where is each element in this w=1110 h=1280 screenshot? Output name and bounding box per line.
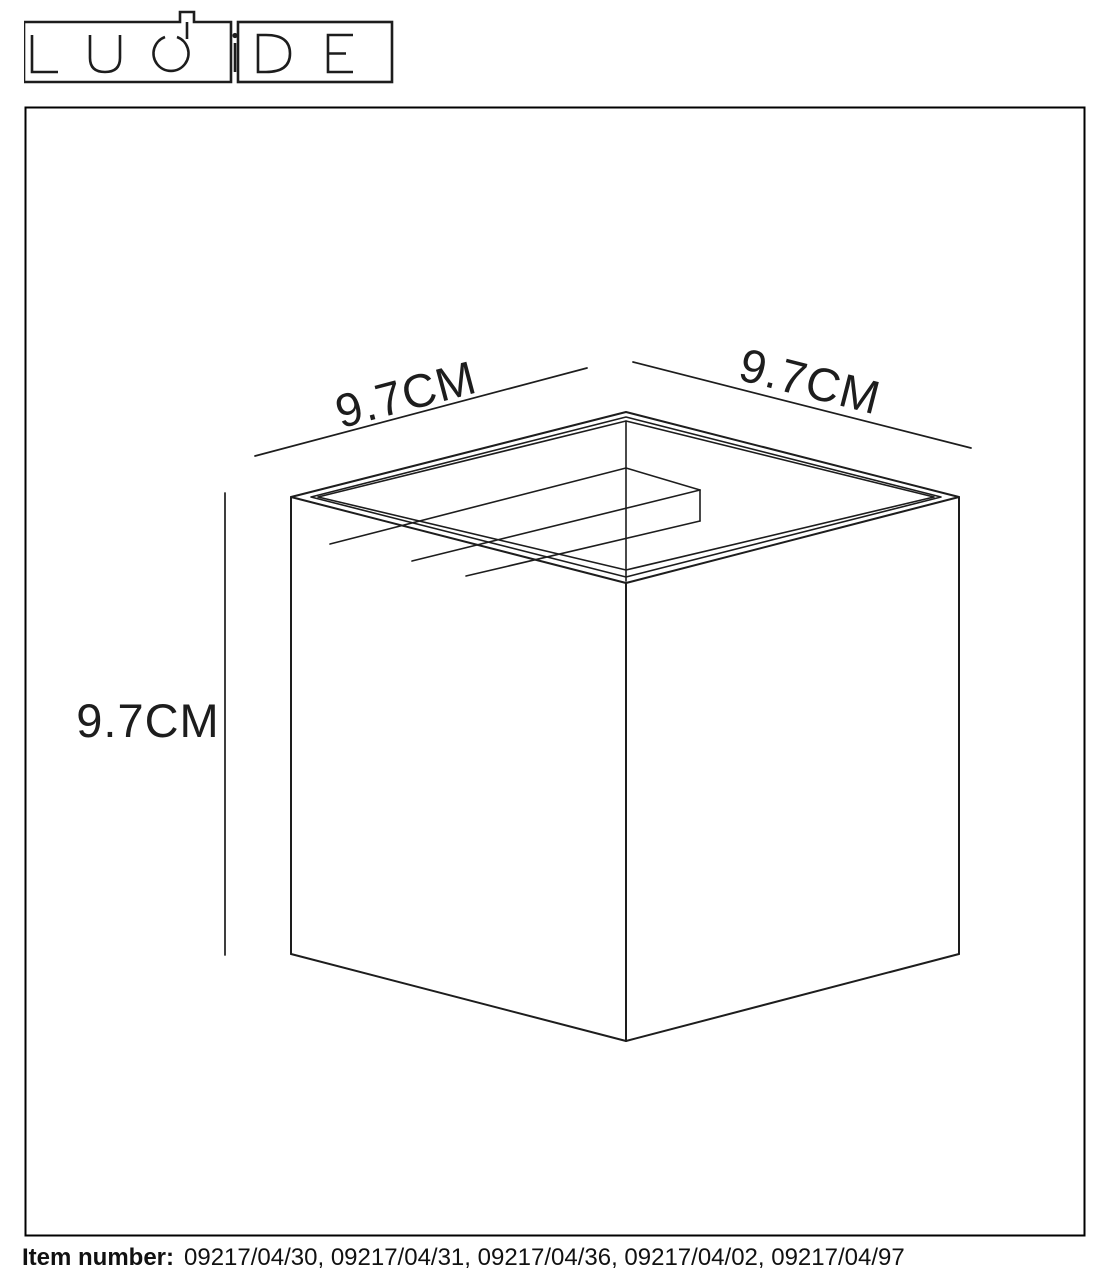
dimension-lines [225,362,971,955]
dimension-drawing: 9.7CM 9.7CM 9.7CM [0,0,1110,1280]
sheet-border [26,108,1085,1236]
dim-label-left: 9.7CM [76,694,219,747]
cube-outline [291,412,959,1041]
item-number-row: Item number:09217/04/30, 09217/04/31, 09… [22,1244,1092,1272]
dim-label-top-right: 9.7CM [734,338,886,425]
item-number-values: 09217/04/30, 09217/04/31, 09217/04/36, 0… [184,1244,905,1271]
item-number-label: Item number: [22,1244,174,1271]
dim-label-top-left: 9.7CM [330,350,482,438]
